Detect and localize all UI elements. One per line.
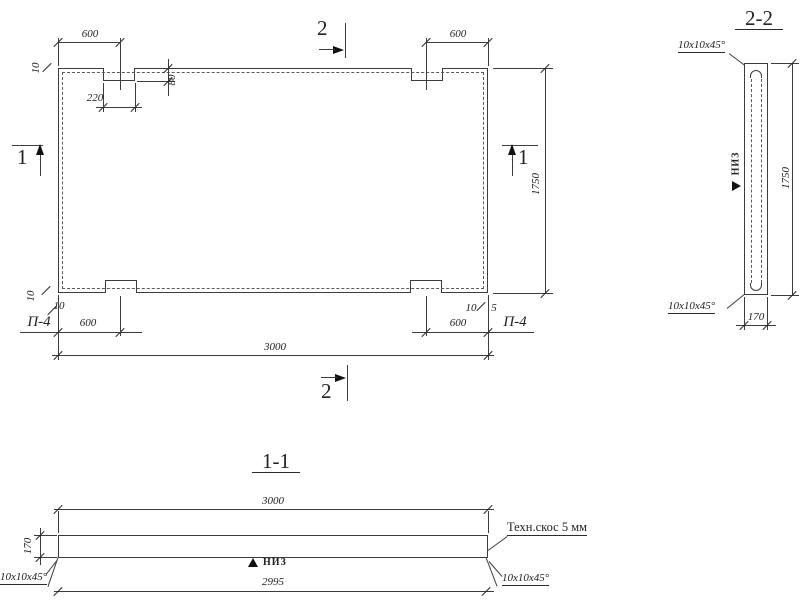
- cut-line: [40, 152, 41, 176]
- panel-section-1-1-outline: [58, 535, 488, 558]
- cut-line: [512, 152, 513, 176]
- plan-hidden-contour: [62, 72, 484, 289]
- dim-600-top-left: 600: [68, 28, 112, 40]
- chamfer-label-left: 10x10x45°: [0, 571, 47, 585]
- chamfer-label-right: 10x10x45°: [502, 572, 549, 586]
- dim-line: [426, 42, 488, 43]
- ext-line: [120, 296, 121, 336]
- ext-line: [488, 38, 489, 66]
- cut-mark-2-bottom: 2: [321, 381, 332, 402]
- niz-marker-icon: [732, 181, 741, 191]
- ext-line: [771, 63, 799, 64]
- dim-line: [52, 355, 494, 356]
- cut-arrow-icon: [508, 144, 516, 155]
- dim-600-bottom-left: 600: [66, 317, 110, 329]
- dim-10-top-left: 10: [30, 58, 42, 78]
- dim-10-bottom-left-vert: 10: [25, 286, 37, 306]
- cut-line: [321, 377, 337, 378]
- dim-170-2-2: 170: [744, 311, 768, 323]
- dim-3000-1-1: 3000: [248, 495, 298, 507]
- dim-line: [54, 591, 494, 592]
- ext-line: [135, 83, 136, 112]
- section-title-1-1: 1-1: [252, 450, 300, 473]
- dim-3000-plan: 3000: [250, 341, 300, 353]
- dim-220: 220: [73, 92, 117, 104]
- tech-bevel-note: Техн.скос 5 мм: [507, 521, 587, 536]
- leader-line: [727, 294, 745, 309]
- niz-label-1-1: НИЗ: [263, 557, 287, 568]
- dim-1750-2-2: 1750: [780, 161, 792, 195]
- chamfer-line: [486, 557, 498, 586]
- ext-line: [120, 38, 121, 90]
- niz-marker-icon: [248, 558, 258, 567]
- drawing-sheet: 600 10 220 80 600 2 2: [0, 0, 800, 600]
- cut-mark-1-left: 1: [17, 147, 28, 168]
- chamfer-line: [47, 557, 58, 587]
- slot-end-arc: [750, 70, 762, 78]
- dim-5-bottom-right: 5: [488, 302, 500, 314]
- ext-line: [58, 38, 59, 66]
- ext-line: [58, 511, 59, 533]
- dim-line: [545, 68, 546, 293]
- ext-line: [426, 296, 427, 336]
- niz-label-2-2: НИЗ: [731, 149, 742, 179]
- dim-600-bottom-right: 600: [436, 317, 480, 329]
- dim-line: [20, 332, 142, 333]
- cut-line: [345, 23, 346, 58]
- ext-line: [488, 511, 489, 533]
- cut-arrow-icon: [333, 46, 344, 54]
- dim-80: 80: [166, 70, 178, 90]
- ext-line: [426, 38, 427, 90]
- dim-tick: [41, 286, 50, 295]
- cut-arrow-icon: [36, 144, 44, 155]
- dim-tick: [42, 63, 51, 72]
- cut-arrow-icon: [335, 374, 346, 382]
- dim-line: [54, 509, 494, 510]
- ext-line: [771, 295, 799, 296]
- leader-line: [488, 536, 508, 551]
- chamfer-label-top: 10x10x45°: [678, 39, 725, 53]
- chamfer-label-bottom: 10x10x45°: [668, 300, 715, 314]
- dim-170-1-1: 170: [22, 534, 34, 558]
- hidden-slot-line: [751, 79, 752, 283]
- dim-line: [792, 63, 793, 295]
- cut-mark-1-right: 1: [518, 147, 529, 168]
- cut-line: [319, 49, 335, 50]
- dim-1750-plan: 1750: [530, 167, 542, 201]
- dim-600-top-right: 600: [436, 28, 480, 40]
- cut-line: [347, 365, 348, 401]
- section-title-2-2: 2-2: [735, 7, 783, 30]
- cut-mark-2-top: 2: [317, 18, 328, 39]
- label-p4-right: П-4: [498, 314, 532, 330]
- dim-2995: 2995: [248, 576, 298, 588]
- leader-line: [729, 53, 746, 66]
- dim-line: [412, 332, 534, 333]
- panel-section-2-2-outline: [744, 63, 768, 295]
- hidden-slot-line: [761, 79, 762, 283]
- dim-line: [58, 42, 120, 43]
- label-p4-left: П-4: [22, 314, 56, 330]
